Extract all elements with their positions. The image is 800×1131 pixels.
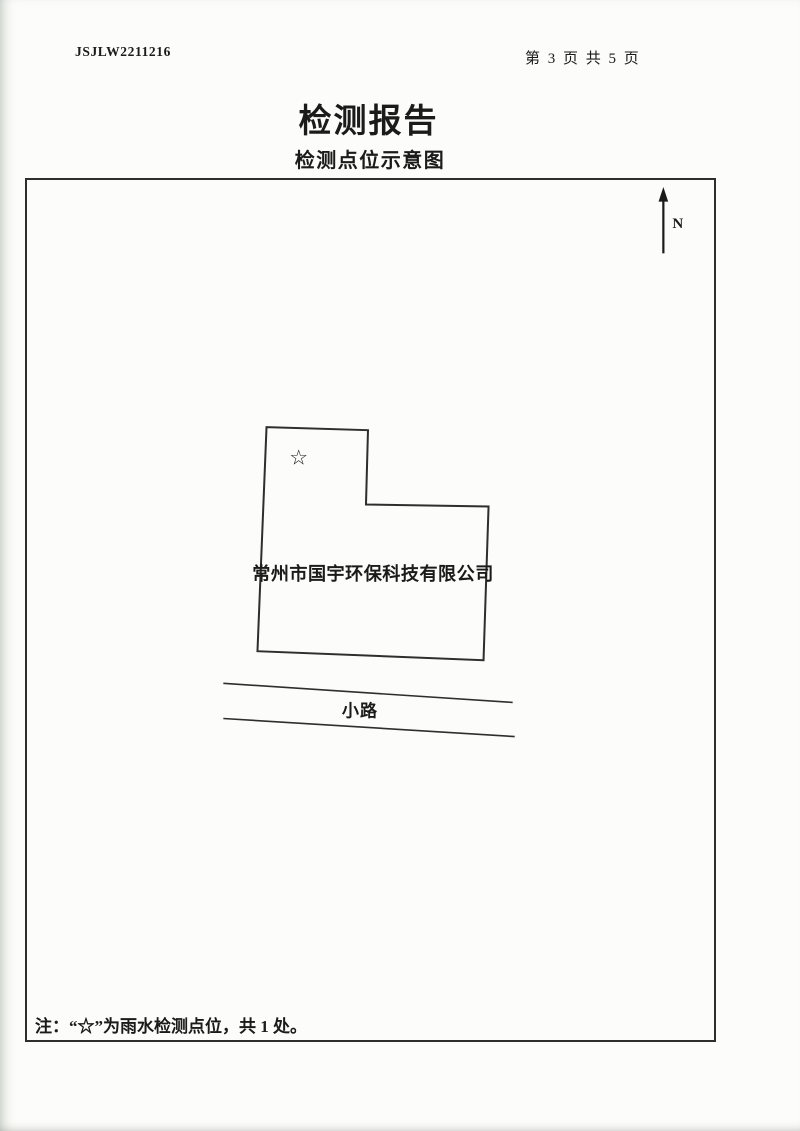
north-label: N [672,216,683,232]
road-line-upper [223,683,512,702]
building-label: 常州市国宇环保科技有限公司 [252,563,494,584]
diagram-subtitle: 检测点位示意图 [0,144,740,173]
sampling-point-star-icon: ☆ [289,445,308,469]
report-number: JSJLW2211216 [75,44,171,60]
diagram-note: 注：“☆”为雨水检测点位，共 1 处。 [35,1012,307,1037]
report-title: 检测报告 [0,94,737,142]
report-page: JSJLW2211216 第 3 页 共 5 页 检测报告 检测点位示意图 N … [0,0,800,1131]
road-label: 小路 [342,700,378,720]
site-diagram: N ☆ 常州市国宇环保科技有限公司 小路 [27,180,714,1040]
north-arrow-icon [659,187,669,253]
page-indicator: 第 3 页 共 5 页 [525,47,641,68]
diagram-box: N ☆ 常州市国宇环保科技有限公司 小路 注：“☆”为雨水检测点位，共 1 处。 [25,178,716,1042]
road-line-lower [223,719,514,737]
